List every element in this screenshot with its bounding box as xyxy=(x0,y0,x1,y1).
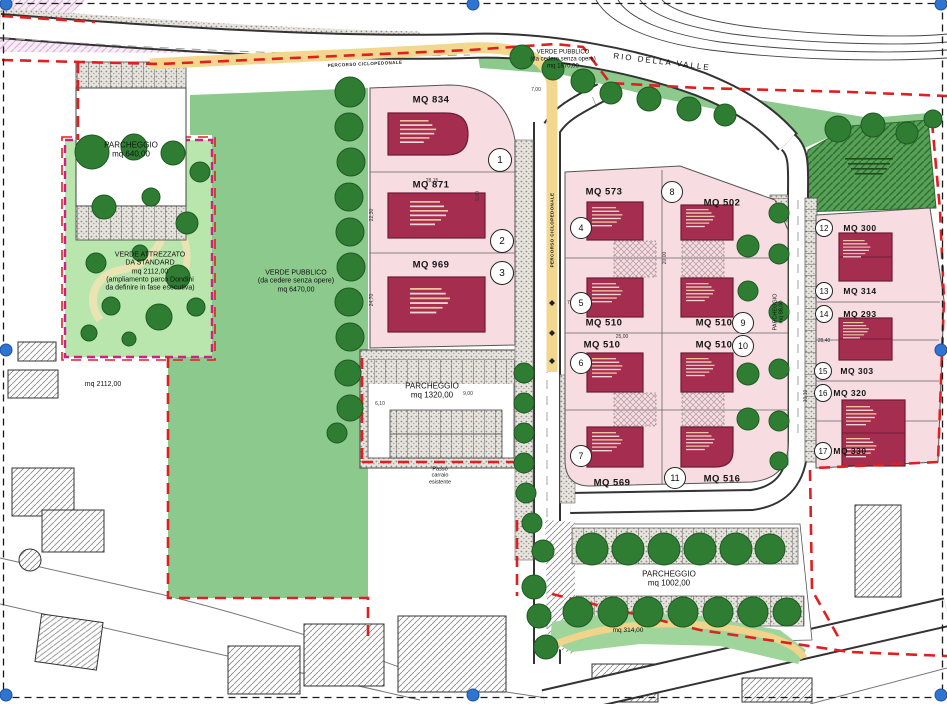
tree-icon xyxy=(637,87,661,111)
lot-area-label-4: MQ 573 xyxy=(586,187,623,198)
tree-icon xyxy=(335,77,365,107)
tree-icon xyxy=(861,113,885,137)
tree-icon xyxy=(825,116,851,142)
label-verde-attrezzato: VERDE ATTREZZATODA STANDARD mq 2112,00(a… xyxy=(105,251,194,292)
tree-icon xyxy=(527,604,551,628)
lot-area-label-16: MQ 320 xyxy=(833,388,866,398)
tree-icon xyxy=(769,359,789,379)
tree-icon xyxy=(514,453,534,473)
selection-handle[interactable] xyxy=(935,689,947,702)
tree-icon xyxy=(924,110,942,128)
lot-area-label-9: MQ 510 xyxy=(696,318,733,329)
tree-icon xyxy=(187,298,205,316)
label-percorso-ciclopedonale-vert: PERCORSO CICLOPEDONALE xyxy=(549,193,554,268)
tree-icon xyxy=(190,162,210,182)
lot-area-label-11: MQ 516 xyxy=(704,474,741,485)
tree-icon xyxy=(336,218,364,246)
tree-icon xyxy=(335,113,363,141)
lot-area-label-7: MQ 569 xyxy=(594,478,631,489)
tree-icon xyxy=(86,253,106,273)
tree-icon xyxy=(514,393,534,413)
tree-icon xyxy=(598,597,628,627)
tree-icon xyxy=(81,325,97,341)
lot-number-6: 6 xyxy=(570,352,592,374)
tree-icon xyxy=(677,97,701,121)
tree-icon xyxy=(327,423,347,443)
tree-icon xyxy=(703,597,733,627)
lot-number-17: 17 xyxy=(814,442,832,460)
selection-handle[interactable] xyxy=(0,689,13,702)
lot-area-label-14: MQ 293 xyxy=(843,309,876,319)
tree-icon xyxy=(720,533,752,565)
lot-number-3: 3 xyxy=(490,261,514,285)
tree-icon xyxy=(648,533,680,565)
tree-icon xyxy=(633,597,663,627)
river-contours xyxy=(596,0,947,60)
plan-drawing xyxy=(0,0,947,704)
selection-handle[interactable] xyxy=(935,0,947,11)
dim-label: 10,10 xyxy=(803,390,809,403)
selection-handle[interactable] xyxy=(467,689,480,702)
label-parcheggio-1002: PARCHEGGIOmq 1002,00 xyxy=(642,570,696,589)
lot-number-13: 13 xyxy=(815,282,833,300)
lot-number-11: 11 xyxy=(664,467,686,489)
lot-area-label-15: MQ 303 xyxy=(840,366,873,376)
tree-icon xyxy=(612,533,644,565)
tree-icon xyxy=(737,363,759,385)
lot-area-label-2: MQ 871 xyxy=(413,180,450,191)
tree-icon xyxy=(571,69,595,93)
tree-icon xyxy=(514,423,534,443)
tree-icon xyxy=(769,411,789,431)
lot-number-10: 10 xyxy=(732,335,754,357)
tree-icon xyxy=(337,395,363,421)
label-mq-314: mq 314,00 xyxy=(613,627,644,635)
tree-icon xyxy=(337,148,365,176)
dim-label: 7,00 xyxy=(531,87,541,93)
lot-number-4: 4 xyxy=(570,217,592,239)
tree-icon xyxy=(769,203,789,223)
tree-icon xyxy=(336,323,364,351)
label-parcheggio-1320: PARCHEGGIOmq 1320,00 xyxy=(405,382,459,401)
lot-number-12: 12 xyxy=(815,219,833,237)
tree-icon xyxy=(514,363,534,383)
label-verde-pubblico-6470: VERDE PUBBLICO(da cedere senza opere) mq… xyxy=(258,270,334,295)
tree-icon xyxy=(146,304,172,330)
tree-icon xyxy=(738,281,758,301)
tree-icon xyxy=(737,408,759,430)
site-plan-canvas: PARCHEGGIOmq 640,00 PARCHEGGIOmq 1320,00… xyxy=(0,0,947,704)
dim-label: 5,00 xyxy=(475,191,481,201)
selection-handle[interactable] xyxy=(0,344,13,357)
parking-1320 xyxy=(360,350,522,468)
lot-number-16: 16 xyxy=(814,384,832,402)
tree-icon xyxy=(102,297,120,315)
lot-area-label-13: MQ 314 xyxy=(843,286,876,296)
tree-icon xyxy=(522,575,546,599)
tree-icon xyxy=(770,452,788,470)
label-mq-2112: mq 2112,00 xyxy=(85,381,121,389)
dim-label: 9,00 xyxy=(463,391,473,397)
tree-icon xyxy=(335,183,363,211)
label-passo-carraio: Passocarraioesistente xyxy=(429,466,451,485)
tree-icon xyxy=(737,235,759,257)
label-verde-pubblico-1870: VERDE PUBBLICO(da cedere senza opere) mq… xyxy=(530,49,595,70)
lot-number-7: 7 xyxy=(570,445,592,467)
lot-number-9: 9 xyxy=(732,312,754,334)
dim-label: 20,00 xyxy=(662,252,668,265)
tree-icon xyxy=(684,533,716,565)
lot-area-label-3: MQ 969 xyxy=(413,260,450,271)
tree-icon xyxy=(337,253,365,281)
lot-area-label-6: MQ 510 xyxy=(584,340,621,351)
lot-number-15: 15 xyxy=(814,362,832,380)
tree-icon xyxy=(161,141,185,165)
tree-icon xyxy=(92,195,116,219)
tree-icon xyxy=(563,597,593,627)
lot-number-8: 8 xyxy=(661,181,683,203)
label-parcheggio-640: PARCHEGGIOmq 640,00 xyxy=(104,141,158,160)
label-parcheggio-88: PARCHEGGIOmq 88,00 xyxy=(773,294,786,331)
dim-label: 6,10 xyxy=(375,401,385,407)
lot-area-label-12: MQ 300 xyxy=(843,223,876,233)
tree-icon xyxy=(714,104,736,126)
tree-icon xyxy=(176,212,198,234)
tree-icon xyxy=(668,597,698,627)
tree-icon xyxy=(532,540,554,562)
tree-icon xyxy=(773,598,801,626)
lot-area-label-8: MQ 502 xyxy=(704,198,741,209)
tree-icon xyxy=(516,483,536,503)
tree-icon xyxy=(755,534,785,564)
tree-icon xyxy=(896,122,918,144)
tree-icon xyxy=(576,533,608,565)
lot-number-14: 14 xyxy=(815,305,833,323)
tree-icon xyxy=(534,635,558,659)
lot-number-1: 1 xyxy=(488,148,512,172)
tree-icon xyxy=(769,244,789,264)
dim-label: 24,70 xyxy=(369,294,375,307)
tree-icon xyxy=(335,360,361,386)
lot-area-label-1: MQ 834 xyxy=(413,95,450,106)
tree-icon xyxy=(122,332,136,346)
selection-handle[interactable] xyxy=(935,344,947,357)
tree-icon xyxy=(738,597,768,627)
lot-area-label-17: MQ 330 xyxy=(833,446,866,456)
dim-label: 28,40 xyxy=(818,338,831,344)
lot-number-2: 2 xyxy=(490,229,514,253)
lot-area-label-10: MQ 510 xyxy=(696,340,733,351)
lot-number-5: 5 xyxy=(570,292,592,314)
tree-icon xyxy=(522,513,542,533)
tree-icon xyxy=(335,288,363,316)
tree-icon xyxy=(142,188,160,206)
dim-label: 22,30 xyxy=(369,209,375,222)
tree-icon xyxy=(600,82,622,104)
lot-area-label-5: MQ 510 xyxy=(586,318,623,329)
